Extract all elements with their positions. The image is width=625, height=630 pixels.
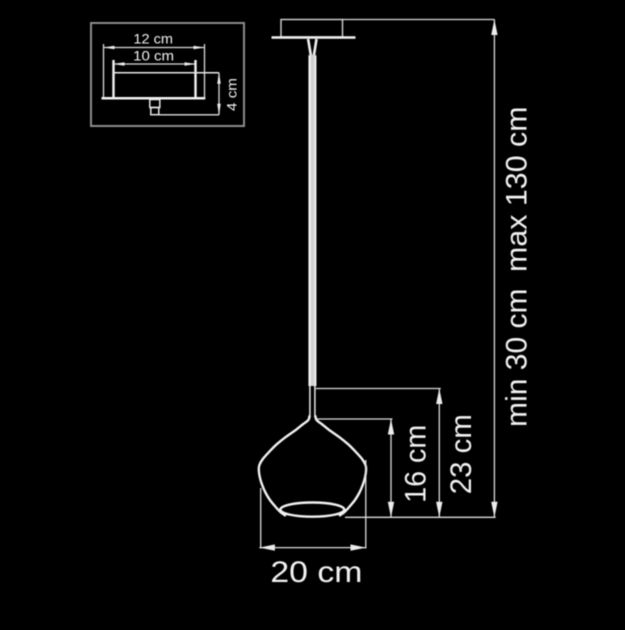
svg-text:16 cm: 16 cm (400, 425, 433, 503)
svg-text:23 cm: 23 cm (445, 414, 478, 494)
svg-text:12 cm: 12 cm (133, 31, 173, 46)
svg-text:10 cm: 10 cm (133, 49, 174, 64)
svg-text:20 cm: 20 cm (270, 556, 362, 589)
svg-text:4 cm: 4 cm (225, 78, 240, 111)
svg-text:min 30 cm: min 30 cm (501, 288, 534, 427)
svg-text:max 130 cm: max 130 cm (501, 106, 534, 272)
